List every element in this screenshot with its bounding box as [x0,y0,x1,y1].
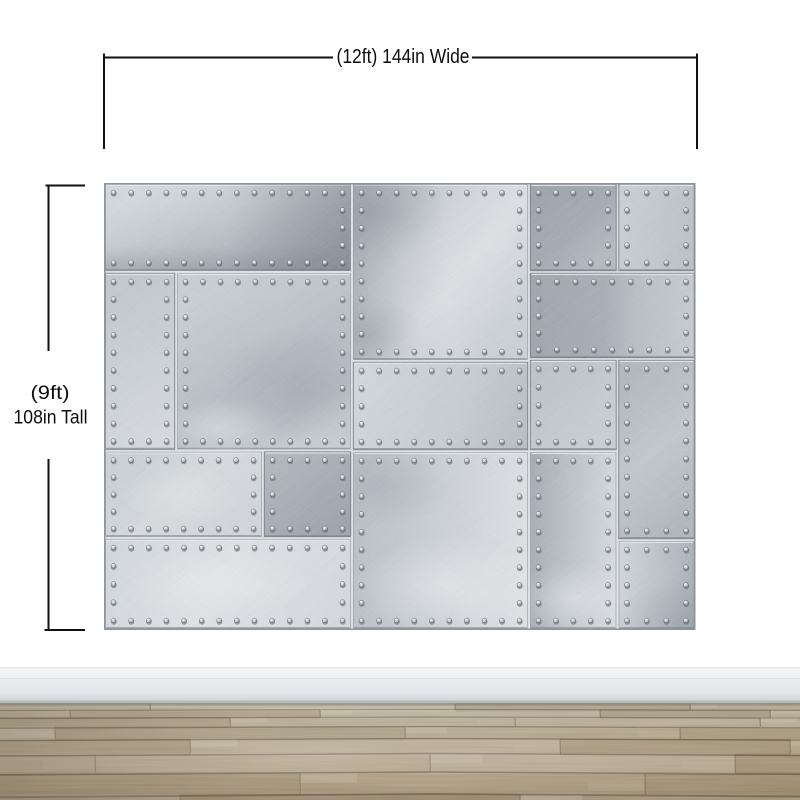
svg-text:108in Tall: 108in Tall [14,408,88,429]
svg-text:(12ft) 144in Wide: (12ft) 144in Wide [337,46,470,68]
svg-text:(9ft): (9ft) [31,383,70,404]
